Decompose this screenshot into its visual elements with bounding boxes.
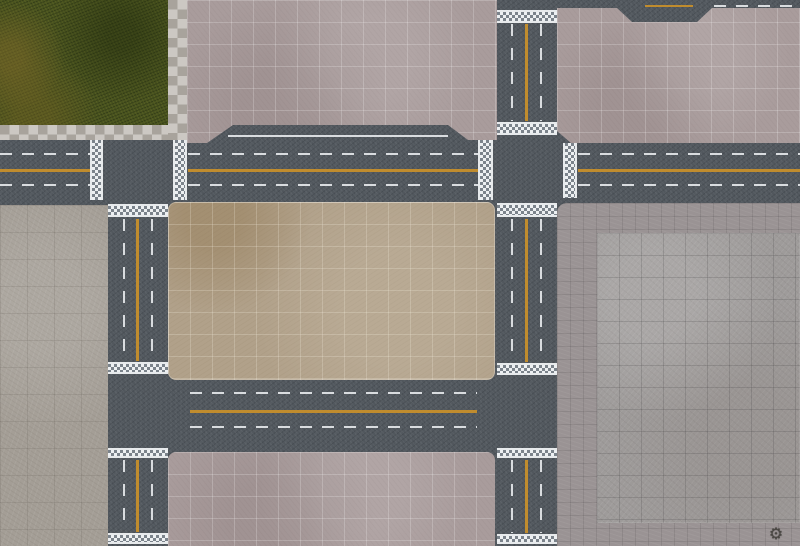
vroad2-yellow-low	[525, 460, 528, 533]
road1-center-yellow-mid	[188, 169, 478, 172]
curb-checker-vertical	[168, 0, 187, 140]
crosswalk-vroad1-t2-south	[108, 448, 168, 458]
plaza-block-center	[168, 202, 495, 380]
vroad2-dash-east-low	[540, 460, 542, 533]
top-road-yellow-segment	[645, 5, 693, 7]
road1-lane-dash-upper-west	[0, 153, 90, 155]
road1-lane-dash-lower-west	[0, 184, 90, 186]
vroad2-yellow-top	[525, 24, 528, 121]
crosswalk-vroad1-t2-north	[108, 362, 168, 374]
pavement-block-top-right	[557, 0, 800, 143]
vroad2-dash-west-top	[511, 24, 513, 121]
crosswalk-vroad2-bottom-edge	[497, 534, 557, 544]
road1-center-yellow-east	[578, 169, 800, 172]
publisher-logo-icon: ⚙	[765, 523, 787, 545]
road2-center-yellow	[190, 410, 477, 413]
crosswalk-vroad2-x1-south	[497, 203, 557, 217]
road2-lane-dash-lower	[190, 426, 477, 428]
crosswalk-vroad2-x1-north	[497, 122, 557, 135]
vroad2-dash-west-low	[511, 460, 513, 533]
road1-center-yellow-west	[0, 169, 90, 172]
curb-checker-horizontal	[0, 125, 168, 140]
concrete-block-left	[0, 205, 108, 546]
crosswalk-road1-t1-west	[90, 140, 103, 200]
vroad2-dash-east-top	[540, 24, 542, 121]
crosswalk-vroad1-t1-south	[108, 204, 168, 217]
road1-lane-dash-upper-mid	[188, 153, 478, 155]
road2-lane-dash-upper	[190, 392, 477, 394]
crosswalk-vroad2-t3-north	[497, 363, 557, 375]
road1-lane-dash-upper-east	[578, 153, 800, 155]
crosswalk-road1-x1-east	[563, 143, 577, 198]
vroad1-dash-east-low	[151, 460, 153, 532]
crosswalk-vroad1-bottom-edge	[108, 533, 168, 544]
crosswalk-vroad2-top-edge	[497, 10, 557, 23]
vroad1-yellow-low	[136, 460, 139, 532]
pavement-block-bottom-center	[168, 452, 495, 546]
top-road-dash-segment	[714, 5, 796, 7]
vroad2-dash-west-mid	[511, 219, 513, 362]
pavement-block-top-center	[187, 0, 497, 143]
grass-park-block	[0, 0, 168, 125]
vroad1-yellow-mid	[136, 219, 139, 361]
vroad2-yellow-mid	[525, 219, 528, 362]
road1-lane-dash-lower-mid	[188, 184, 478, 186]
road1-lane-dash-lower-east	[578, 184, 800, 186]
crosswalk-road1-x1-west	[478, 140, 493, 200]
crosswalk-road1-t1-east	[173, 140, 187, 200]
vroad1-dash-east-mid	[151, 219, 153, 361]
vroad2-dash-east-mid	[540, 219, 542, 362]
concrete-slab-right	[597, 233, 800, 523]
crosswalk-vroad2-t3-south	[497, 448, 557, 458]
vroad1-dash-west-low	[123, 460, 125, 532]
vroad1-dash-west-mid	[123, 219, 125, 361]
game-mat: ⚙	[0, 0, 800, 546]
road1-edge-line-wide-lane	[228, 135, 448, 137]
